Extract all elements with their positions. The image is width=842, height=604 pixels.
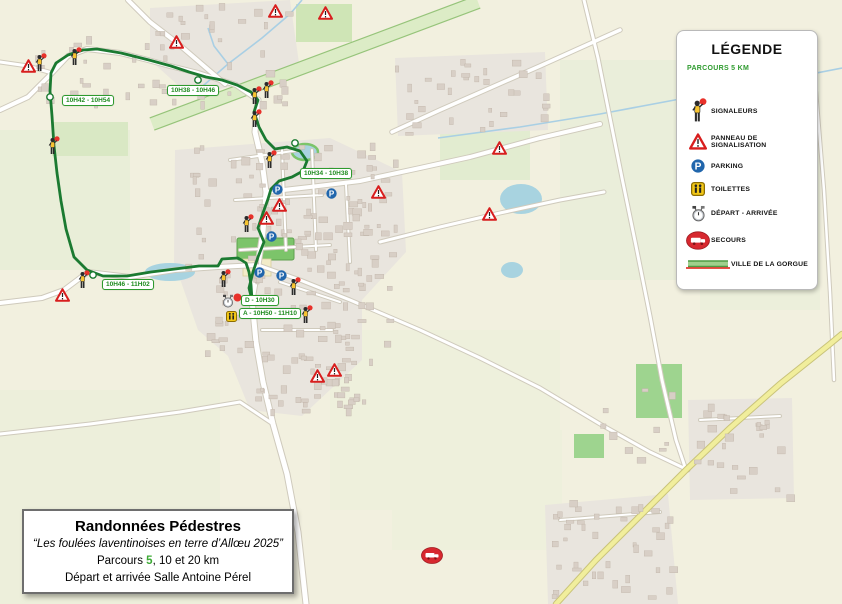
parking-icon: P	[266, 231, 277, 242]
warning-triangle-icon	[685, 133, 711, 150]
route-time-label: 10H42 - 10H54	[62, 95, 114, 106]
route-direction-marker	[47, 94, 53, 100]
svg-text:P: P	[268, 232, 274, 241]
warning-triangle-icon	[55, 288, 70, 302]
route-map: PPPPP 10H42 - 10H5410H38 - 10H4610H34 - …	[0, 0, 842, 604]
secours-icon	[685, 231, 711, 250]
legend-label: PANNEAU DE SIGNALISATION	[711, 135, 809, 149]
signaleur-icon	[264, 150, 277, 170]
legend-item-toilettes: TOILETTES	[685, 182, 809, 196]
legend-label: PARKING	[711, 163, 743, 170]
legend-label: VILLE DE LA GORGUE	[731, 261, 808, 268]
legend-item-depart-arrivee: DÉPART - ARRIVÉE	[685, 205, 809, 222]
parking-icon: P	[276, 270, 287, 281]
signaleur-icon	[77, 270, 90, 290]
legend-subtitle: PARCOURS 5 KM	[687, 65, 809, 72]
legend-label: TOILETTES	[711, 186, 750, 193]
signaleur-icon	[249, 109, 262, 129]
legend-item-secours: SECOURS	[685, 231, 809, 250]
warning-triangle-icon	[259, 211, 274, 225]
warning-triangle-icon	[310, 369, 325, 383]
route-time-label: 10H34 - 10H38	[300, 168, 352, 179]
legend-item-ville: VILLE DE LA GORGUE	[685, 259, 809, 270]
parking-icon: P	[254, 267, 265, 278]
signaleur-icon	[47, 136, 60, 156]
warning-triangle-icon	[482, 207, 497, 221]
route-direction-marker	[195, 77, 201, 83]
signaleur-icon	[261, 80, 274, 100]
warning-triangle-icon	[327, 363, 342, 377]
toilets-icon	[226, 311, 237, 322]
title-box: Randonnées Pédestres “Les foulées lavent…	[22, 509, 294, 594]
parking-icon: P	[326, 188, 337, 199]
warning-triangle-icon	[492, 141, 507, 155]
signaleur-icon	[69, 47, 82, 67]
route-time-label: 10H46 - 11H02	[102, 279, 154, 290]
signaleur-icon	[288, 277, 301, 297]
toilets-icon	[685, 182, 711, 196]
parking-icon: P	[272, 184, 283, 195]
route-swatch-icon	[685, 259, 731, 270]
warning-triangle-icon	[371, 185, 386, 199]
svg-text:P: P	[328, 189, 334, 198]
depart-arrivee-icon	[685, 205, 711, 222]
svg-text:P: P	[256, 268, 262, 277]
secours-icon	[421, 547, 443, 564]
event-distances: Parcours 5, 10 et 20 km	[30, 555, 286, 567]
legend-title: LÉGENDE	[685, 41, 809, 57]
route-direction-marker	[292, 140, 298, 146]
parking-icon: P	[685, 159, 711, 173]
event-location: Départ et arrivée Salle Antoine Pérel	[30, 572, 286, 584]
svg-text:P: P	[695, 162, 702, 173]
warning-triangle-icon	[268, 4, 283, 18]
svg-text:P: P	[274, 185, 280, 194]
warning-triangle-icon	[318, 6, 333, 20]
warning-triangle-icon	[21, 59, 36, 73]
route-time-label: A - 10H50 - 11H10	[239, 308, 301, 319]
route-direction-marker	[90, 272, 96, 278]
legend-label: SIGNALEURS	[711, 108, 758, 115]
legend-item-parking: P PARKING	[685, 159, 809, 173]
legend-item-signaleurs: SIGNALEURS	[685, 98, 809, 124]
route-time-label: D - 10H30	[241, 295, 279, 306]
signaleur-icon	[300, 305, 313, 325]
route-time-label: 10H38 - 10H46	[167, 85, 219, 96]
signaleur-icon	[218, 269, 231, 289]
svg-text:P: P	[278, 271, 284, 280]
legend-card: LÉGENDE PARCOURS 5 KM SIGNALEURS PANNEAU…	[676, 30, 818, 290]
warning-triangle-icon	[169, 35, 184, 49]
warning-triangle-icon	[272, 198, 287, 212]
event-title: Randonnées Pédestres	[30, 518, 286, 535]
legend-item-panneau: PANNEAU DE SIGNALISATION	[685, 133, 809, 150]
signaleur-icon	[685, 98, 711, 124]
legend-label: DÉPART - ARRIVÉE	[711, 210, 778, 217]
signaleur-icon	[241, 214, 254, 234]
event-subtitle: “Les foulées laventinoises en terre d’Al…	[30, 538, 286, 550]
legend-label: SECOURS	[711, 237, 746, 244]
